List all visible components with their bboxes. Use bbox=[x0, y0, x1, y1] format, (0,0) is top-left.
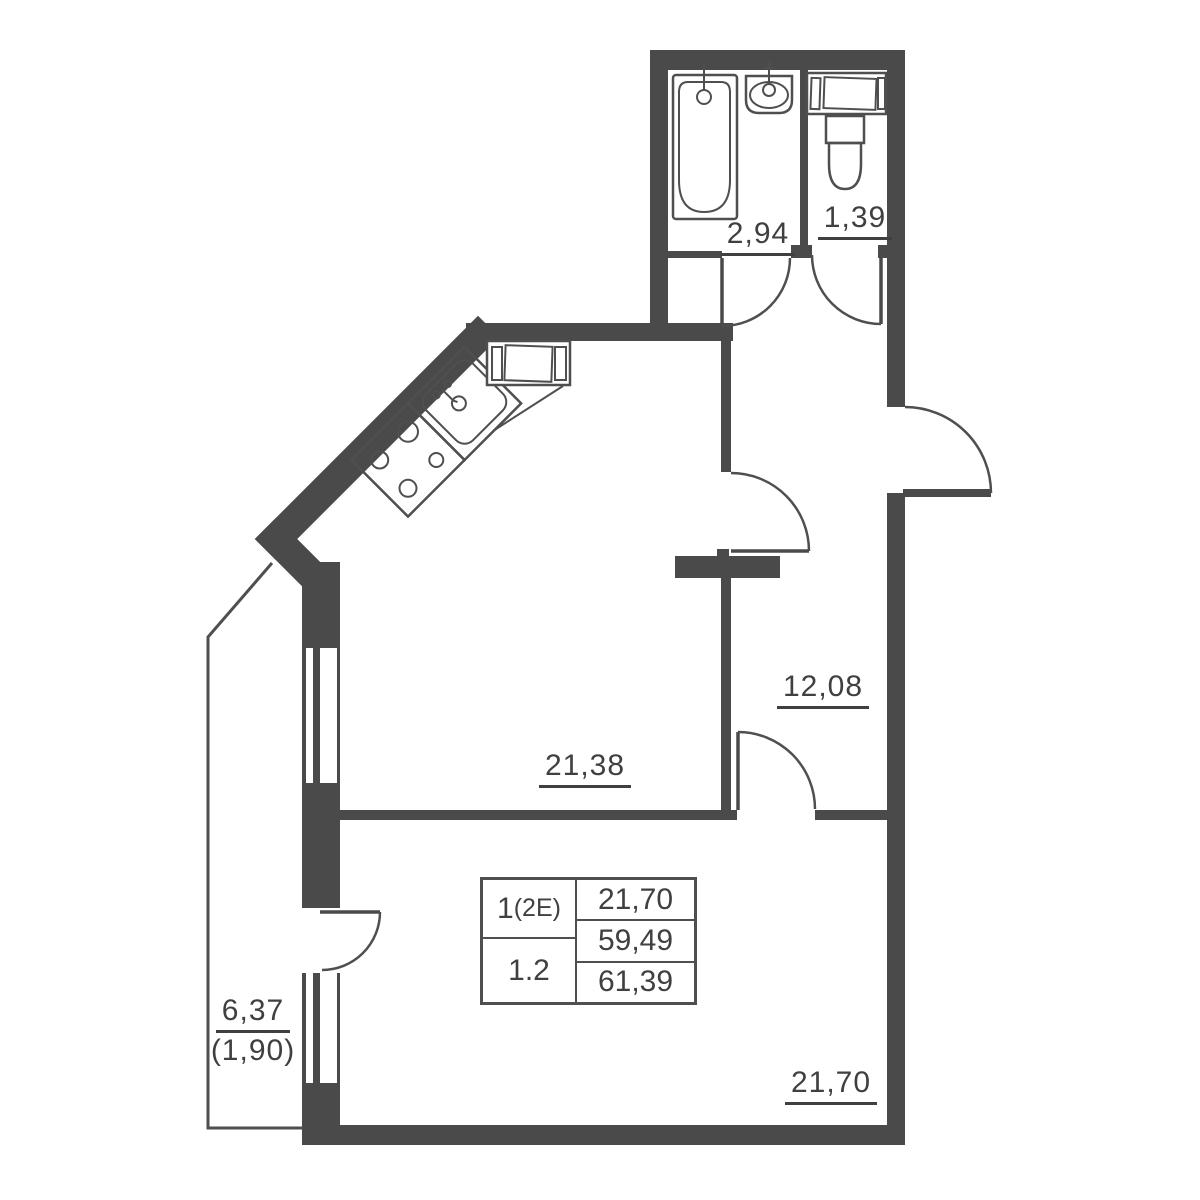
bathroom-door-arc bbox=[722, 258, 790, 326]
bathtub-icon bbox=[673, 62, 737, 219]
living-room-door bbox=[738, 732, 815, 810]
balcony-area-reduced-value: (1,90) bbox=[211, 1034, 295, 1067]
layout-type: (2E) bbox=[514, 894, 561, 923]
toilet-area-value: 1,39 bbox=[818, 200, 892, 240]
wall-left-middle bbox=[302, 783, 340, 908]
bathroom-area-value: 2,94 bbox=[721, 216, 795, 256]
balcony-area-value: 6,37 bbox=[216, 993, 290, 1033]
floor-plan-page: 2,94 1,39 12,08 21,38 21,70 6,37 (1,90) … bbox=[0, 0, 1200, 1200]
kitchen-door bbox=[731, 473, 809, 551]
apartment-type-cell: 1(2E) bbox=[483, 880, 575, 939]
area-excluding-balcony-cell: 59,49 bbox=[577, 921, 694, 962]
kitchen-door-arc bbox=[731, 473, 809, 551]
wall-top bbox=[650, 50, 905, 70]
wall-central-upper bbox=[721, 330, 731, 472]
bathroom-door bbox=[722, 258, 790, 326]
wall-pier bbox=[675, 556, 780, 578]
wall-bathroom-left bbox=[650, 60, 668, 341]
wall-diagonal bbox=[276, 337, 478, 539]
room-label-balcony: 6,37 (1,90) bbox=[198, 993, 308, 1069]
entrance-door-arc bbox=[905, 407, 991, 493]
kitchen-living-area-value: 21,38 bbox=[539, 748, 631, 788]
room-label-living-room: 21,70 bbox=[771, 1065, 891, 1105]
wall-left-lower bbox=[302, 1083, 340, 1135]
unit-number: 1.2 bbox=[508, 954, 550, 988]
total-area-cell: 61,39 bbox=[577, 963, 694, 1002]
floor-plan-drawing bbox=[0, 0, 1200, 1200]
wall-central-lower bbox=[721, 578, 731, 816]
toilet-icon bbox=[826, 116, 864, 189]
entrance-door bbox=[903, 407, 991, 497]
wall-kitchen-top bbox=[466, 323, 733, 341]
area-excluding-balcony: 59,49 bbox=[598, 924, 673, 958]
wall-divider-left bbox=[318, 810, 737, 820]
kitchen-appliance-icon bbox=[487, 341, 570, 385]
living-room-door-arc bbox=[738, 732, 815, 809]
living-area-cell: 21,70 bbox=[577, 880, 694, 921]
apartment-info-table: 1(2E) 1.2 21,70 59,49 61,39 bbox=[480, 877, 697, 1005]
room-label-bathroom: 2,94 bbox=[708, 216, 808, 256]
entrance-door-leaf bbox=[903, 489, 991, 497]
wall-pier-nub bbox=[717, 549, 729, 559]
toilet-door-arc bbox=[812, 255, 881, 324]
total-area: 61,39 bbox=[598, 965, 673, 999]
wall-right-lower bbox=[887, 493, 905, 1145]
info-table-left-column: 1(2E) 1.2 bbox=[483, 880, 577, 1002]
room-label-kitchen-living: 21,38 bbox=[525, 748, 645, 788]
hallway-area-value: 12,08 bbox=[777, 669, 869, 709]
wall-left-upper bbox=[302, 562, 340, 648]
info-table-right-column: 21,70 59,49 61,39 bbox=[577, 880, 694, 1002]
room-label-hallway: 12,08 bbox=[763, 669, 883, 709]
balcony-door-arc bbox=[322, 912, 380, 970]
washing-machine-icon bbox=[807, 73, 886, 114]
living-room-area-value: 21,70 bbox=[785, 1065, 877, 1105]
unit-number-cell: 1.2 bbox=[483, 939, 575, 1002]
wall-divider-right bbox=[815, 810, 887, 820]
balcony-door bbox=[320, 912, 380, 970]
wall-bottom bbox=[302, 1125, 905, 1145]
room-label-toilet: 1,39 bbox=[805, 200, 905, 240]
rooms-count: 1 bbox=[497, 892, 514, 926]
kitchen-window bbox=[302, 648, 340, 783]
living-area: 21,70 bbox=[598, 883, 673, 917]
toilet-door bbox=[812, 255, 881, 324]
